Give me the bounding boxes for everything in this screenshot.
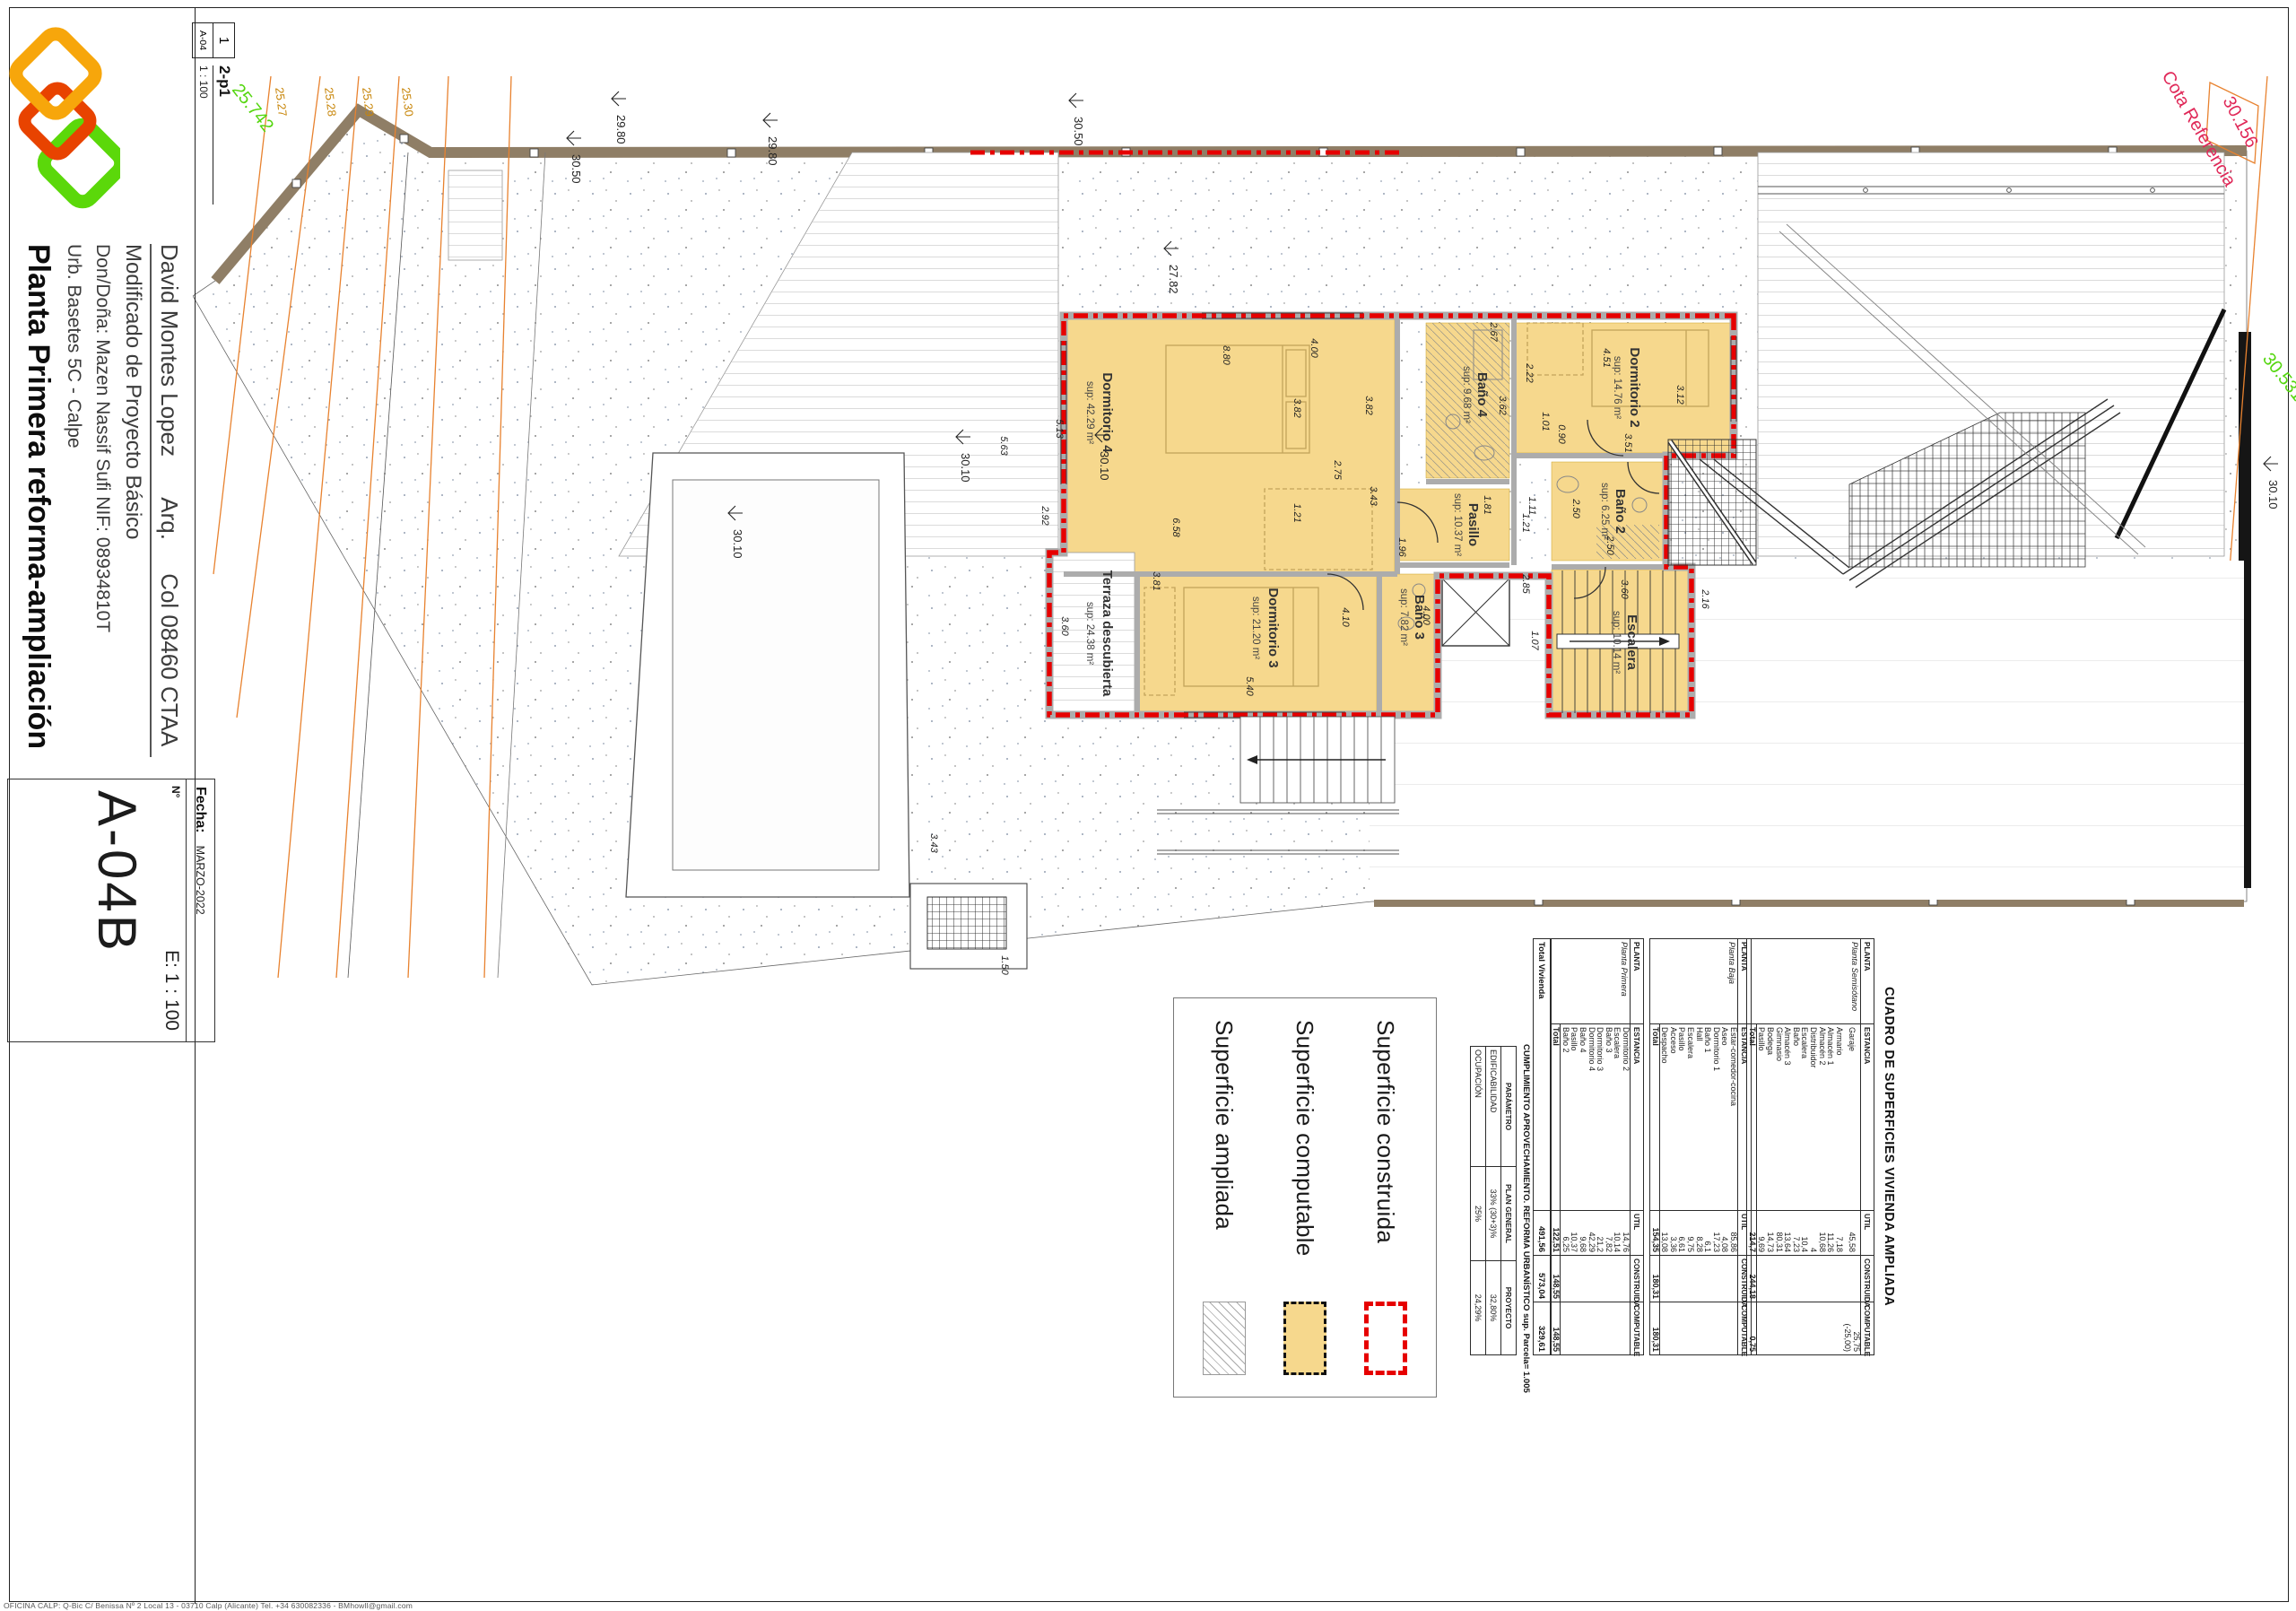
project-type: Modificado de Proyecto Básico — [120, 244, 145, 540]
col-planta: PLANTA — [1861, 939, 1874, 1024]
plan-text-dim: 3.82 — [1363, 396, 1374, 414]
viewport-tag: 1 A-04 2-p1 1 : 100 — [192, 22, 235, 238]
sheet-number-label: N° — [170, 786, 182, 797]
red-dashed-swatch-icon — [1364, 1302, 1407, 1375]
planta-cell: Planta Baja — [1650, 939, 1738, 1024]
total-util: 491,56 — [1534, 1211, 1551, 1256]
plan-text-dim: 5.13 — [1054, 419, 1065, 439]
col-computable: COMPUTABLE — [1861, 1302, 1874, 1355]
table-planta-primera: PLANTAESTANCIA UTILCONSTRUIDA COMPUTABLE… — [1551, 938, 1644, 1355]
client-line: Don/Doña: Mazen Nassif Sufi NIF: 0893481… — [91, 244, 113, 632]
plan-text-dim: 0.90 — [1556, 424, 1567, 444]
legend-label: Superficie ampliada — [1211, 1020, 1239, 1230]
plan-text-lvl: 30.10 — [731, 529, 744, 559]
room-label-terraza: Terraza descubierta — [1100, 570, 1115, 697]
plan-text-dim: 3.81 — [1151, 571, 1161, 590]
room-label-bano-4: Baño 4 — [1474, 372, 1490, 418]
yellow-dashed-swatch-icon — [1283, 1302, 1326, 1375]
total-construida: 573,04 — [1534, 1256, 1551, 1302]
plan-text-lvl: 27.82 — [1167, 265, 1180, 294]
elevator-shaft — [1442, 579, 1509, 646]
plan-text-dim: 2.50 — [1570, 498, 1581, 518]
plan-text-dim: 3.82 — [1291, 398, 1302, 417]
plan-text-sup: sup: 9.68 m² — [1461, 366, 1472, 423]
cumplimiento-title: CUMPLIMIENTO APROVECHAMIENTO. REFORMA UR… — [1521, 1044, 1531, 1358]
plan-text-sup: sup: 7.82 m² — [1398, 588, 1409, 646]
plan-text-dim: 3.60 — [1619, 579, 1630, 599]
plan-text-lvl: 29.80 — [766, 136, 779, 166]
plan-text-lvl: 30.50 — [1072, 117, 1085, 146]
plan-text-dim: 3.43 — [928, 833, 939, 853]
room-label-pasillo: Pasillo — [1465, 503, 1481, 546]
plan-text-dim: 4.10 — [1340, 607, 1351, 627]
plan-text-lvl: 30.10 — [2266, 480, 2280, 509]
plan-text-dim: 2.75 — [1332, 459, 1343, 480]
plan-text-dim: 8.80 — [1221, 345, 1231, 365]
plan-text-dim: 3.51 — [1622, 433, 1633, 452]
viewport-number: 1 — [213, 23, 234, 57]
drawing-sheet: .rm{font:600 15px "Liberation Sans",sans… — [0, 0, 2296, 1611]
legend-label: Superficie computable — [1291, 1020, 1319, 1257]
plan-text-lvl: 30.10 — [1098, 451, 1111, 481]
plan-text-dim: 3.62 — [1497, 396, 1508, 414]
legend-item-construida: Superficie construida — [1353, 1020, 1418, 1375]
plan-text-dim: 1.21 — [1291, 503, 1302, 522]
plan-text-dim: 1.11 — [1526, 497, 1537, 516]
plan-text-grn: 30.531 — [2258, 350, 2296, 405]
plan-text-dim: 5.63 — [998, 436, 1009, 456]
address-line: Urb. Basetes 5C - Calpe — [63, 244, 84, 448]
legend-label: Superficie construida — [1372, 1020, 1400, 1243]
table-total-vivienda: Total Vivienda 491,56 573,04 329,61 — [1533, 938, 1551, 1355]
sheet-scale: E: 1 : 100 — [161, 950, 182, 1031]
plan-text-dim: 2.92 — [1039, 505, 1050, 525]
print-footer: OFICINA CALP: Q-Bic C/ Benissa Nº 2 Loca… — [4, 1601, 413, 1610]
room-label-escalera: Escalera — [1624, 614, 1639, 670]
trellis — [1668, 440, 1756, 565]
plan-text-dim: 4.00 — [1421, 605, 1431, 625]
planta-cell: Planta Semisótano — [1747, 939, 1861, 1024]
plan-text-dim: 2.22 — [1524, 362, 1535, 382]
surface-table-title: CUADRO DE SUPERFICIES VIVIENDA AMPLIADA — [1882, 938, 1896, 1354]
plan-text-dim: 4.00 — [1309, 338, 1319, 358]
total-vivienda-label: Total Vivienda — [1534, 939, 1551, 1211]
plan-text-sup: sup: 10.14 m² — [1611, 611, 1622, 674]
architect-college: Col 08460 CTAA — [156, 573, 183, 746]
plan-text-dim: 3.60 — [1059, 616, 1070, 636]
plan-text-dim: 1.96 — [1396, 537, 1407, 557]
sheet-number: A-04B — [86, 790, 148, 954]
pool — [626, 453, 909, 897]
room-label-bano-2: Baño 2 — [1613, 489, 1628, 534]
col-construida: CONSTRUIDA — [1861, 1256, 1874, 1302]
legend: Superficie construida Superficie computa… — [1173, 997, 1437, 1398]
legend-item-ampliada: Superficie ampliada — [1192, 1020, 1257, 1375]
planta-cell: Planta Primera — [1551, 939, 1630, 1024]
table-planta-semisotano: PLANTA ESTANCIA UTIL CONSTRUIDA COMPUTAB… — [1746, 938, 1874, 1355]
room-label-dormitorio-4: Dormitorio 4 — [1100, 372, 1115, 453]
plan-text-dim: 1.07 — [1529, 631, 1540, 650]
plan-text-dim: 5.40 — [1244, 676, 1255, 696]
plan-text-sup: sup: 10.37 m² — [1452, 493, 1463, 556]
fecha-value: MARZO-2022 — [195, 846, 207, 915]
plan-text-dim: 4.51 — [1601, 348, 1612, 367]
plan-text-sup: sup: 42.29 m² — [1084, 381, 1095, 444]
plan-text-lvl: 29.80 — [614, 115, 628, 144]
plan-text-dim: 2.16 — [1700, 588, 1710, 609]
plan-text-lvl: 30.50 — [570, 154, 583, 184]
screenshot-root: .rm{font:600 15px "Liberation Sans",sans… — [0, 0, 2296, 1611]
room-label-dormitorio-3: Dormitorio 3 — [1265, 588, 1281, 667]
legend-item-computable: Superficie computable — [1273, 1020, 1337, 1375]
plan-text-sup: sup: 14.76 m² — [1612, 356, 1622, 419]
plan-text-org: 25.28 — [322, 87, 339, 118]
table-row: Planta BajaEstar-comedor-cocina85,86 — [1728, 939, 1737, 1355]
plan-text-dim: 3.43 — [1368, 486, 1378, 506]
plan-text-dim: 2.50 — [1605, 535, 1615, 555]
col-estancia: ESTANCIA — [1861, 1024, 1874, 1211]
col-util: UTIL — [1861, 1211, 1874, 1256]
studio-logo-icon — [7, 20, 120, 228]
table-cumplimiento: PARÁMETRO PLAN GENERAL PROYECTO EDIFICAB… — [1470, 1046, 1517, 1355]
hatch-swatch-icon — [1203, 1302, 1246, 1375]
room-label-dormitorio-2: Dormitorio 2 — [1627, 347, 1642, 427]
table-row: Planta PrimeraDormitorio 214,76 — [1621, 939, 1630, 1355]
architect-name: David Montes Lopez — [156, 244, 183, 457]
plan-text-dim: 1.50 — [999, 955, 1010, 975]
table-row: Planta SemisótanoGaraje45,5825,75 (-25,0… — [1843, 939, 1861, 1355]
table-planta-baja: PLANTAESTANCIA UTILCONSTRUIDA COMPUTABLE… — [1649, 938, 1752, 1355]
fecha-label: Fecha: — [193, 787, 209, 833]
viewport-view-name: 2-p1 — [213, 65, 233, 205]
architect-title: Arq. — [156, 497, 183, 540]
viewport-sheet-ref: A-04 — [193, 23, 213, 57]
plan-text-sup: sup: 21.20 m² — [1250, 597, 1261, 659]
plan-text-cota: 30.156 — [2219, 93, 2262, 151]
plan-text-sup: sup: 6.25 m² — [1599, 483, 1610, 540]
plan-text-lvl: 30.10 — [959, 453, 972, 483]
plan-text-sup: sup: 24.38 m² — [1084, 602, 1095, 665]
plan-text-org: 25.27 — [273, 87, 290, 118]
viewport-scale: 1 : 100 — [197, 65, 210, 99]
plan-text-dim: 1.01 — [1540, 412, 1551, 431]
titleblock-info-box: Fecha: MARZO-2022 N° E: 1 : 100 A-04B — [7, 779, 215, 1042]
plan-text-dim: 2.85 — [1520, 573, 1531, 594]
plan-text-dim: 1.21 — [1520, 513, 1531, 532]
total-computable: 329,61 — [1534, 1302, 1551, 1355]
plan-text-dim: 6.58 — [1170, 518, 1181, 537]
plan-text-dim: 1.81 — [1482, 495, 1492, 514]
plan-text-org: 25.30 — [399, 87, 416, 118]
small-deck-steps — [448, 170, 502, 260]
architect-line: David Montes Lopez Arq. Col 08460 CTAA — [150, 244, 183, 757]
sheet-title: Planta Primera reforma-ampliación — [21, 244, 56, 749]
plan-text-dim: 2.67 — [1488, 321, 1499, 342]
plan-text-dim: 3.12 — [1674, 385, 1685, 404]
